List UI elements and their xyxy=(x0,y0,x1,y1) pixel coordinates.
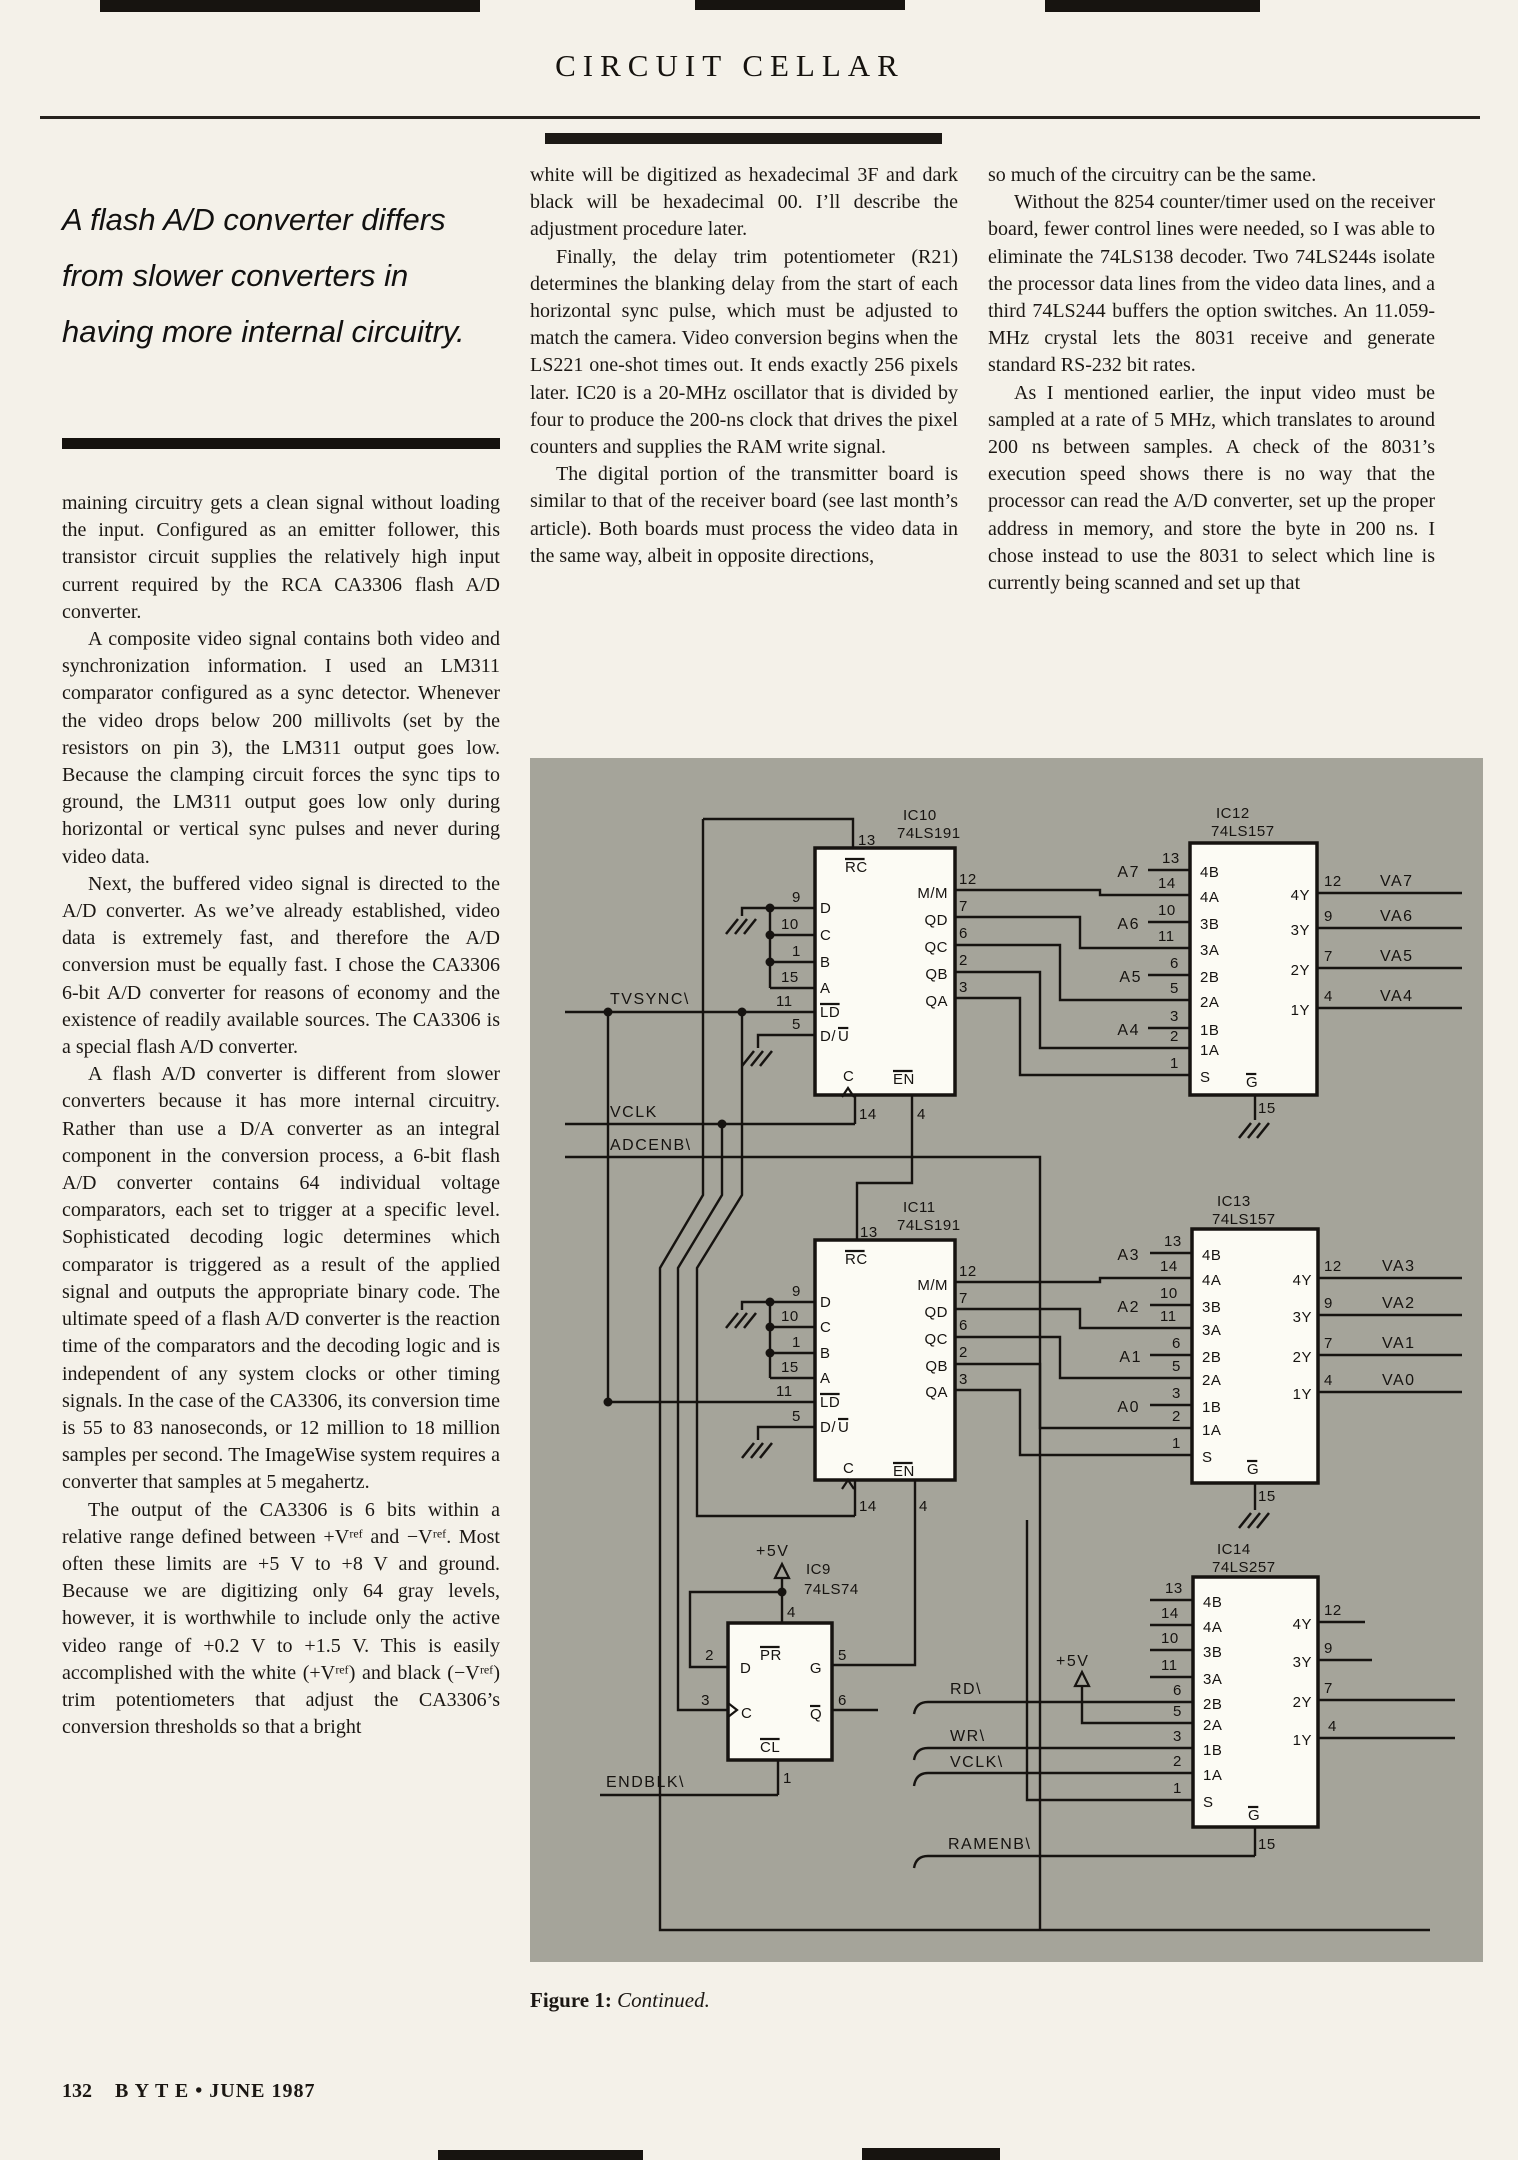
svg-text:12: 12 xyxy=(1324,1602,1342,1619)
svg-text:D/: D/ xyxy=(820,1419,836,1436)
svg-text:3B: 3B xyxy=(1200,916,1219,933)
svg-text:VA3: VA3 xyxy=(1382,1258,1416,1275)
svg-text:9: 9 xyxy=(1324,908,1333,925)
svg-text:LD: LD xyxy=(820,1004,840,1021)
svg-text:14: 14 xyxy=(1161,1605,1179,1622)
column-head-rule xyxy=(545,133,942,144)
svg-text:10: 10 xyxy=(781,916,799,933)
svg-text:15: 15 xyxy=(781,969,799,986)
svg-text:14: 14 xyxy=(1158,875,1176,892)
paragraph: white will be digitized as hexadecimal 3… xyxy=(530,162,958,244)
paragraph: Next, the buffered video signal is direc… xyxy=(62,871,500,1061)
svg-text:1: 1 xyxy=(1170,1055,1179,1072)
svg-text:4Y: 4Y xyxy=(1293,1272,1312,1289)
svg-text:7: 7 xyxy=(1324,1335,1333,1352)
svg-text:1B: 1B xyxy=(1202,1399,1221,1416)
svg-text:3Y: 3Y xyxy=(1293,1654,1312,1671)
pull-quote-rule xyxy=(62,438,500,449)
svg-text:4B: 4B xyxy=(1203,1594,1222,1611)
svg-text:C: C xyxy=(820,927,831,944)
svg-text:IC13: IC13 xyxy=(1217,1193,1251,1210)
svg-text:1B: 1B xyxy=(1200,1022,1219,1039)
svg-text:3: 3 xyxy=(1170,1008,1179,1025)
svg-text:5: 5 xyxy=(838,1647,847,1664)
scan-artifact xyxy=(438,2150,643,2160)
svg-text:11: 11 xyxy=(776,993,793,1010)
svg-text:C: C xyxy=(843,1068,854,1085)
svg-text:2A: 2A xyxy=(1200,994,1219,1011)
svg-text:3: 3 xyxy=(1173,1728,1182,1745)
svg-text:11: 11 xyxy=(776,1383,793,1400)
svg-text:13: 13 xyxy=(858,832,876,849)
svg-text:11: 11 xyxy=(1160,1308,1177,1325)
svg-text:12: 12 xyxy=(1324,1258,1342,1275)
svg-text:G: G xyxy=(1247,1461,1259,1478)
svg-text:G: G xyxy=(810,1660,822,1677)
svg-text:A7: A7 xyxy=(1117,864,1140,881)
svg-text:WR\: WR\ xyxy=(950,1728,986,1745)
svg-text:4: 4 xyxy=(1324,1372,1333,1389)
paragraph: A flash A/D converter is different from … xyxy=(62,1061,500,1496)
svg-text:QC: QC xyxy=(925,939,949,956)
svg-text:A: A xyxy=(820,980,831,997)
svg-text:1: 1 xyxy=(792,1334,801,1351)
svg-text:VCLK: VCLK xyxy=(610,1104,658,1121)
svg-text:13: 13 xyxy=(1164,1233,1182,1250)
scan-artifact xyxy=(862,2148,1000,2160)
svg-text:+5V: +5V xyxy=(756,1543,789,1560)
svg-text:B: B xyxy=(820,954,831,971)
page-number: 132 xyxy=(62,2080,92,2102)
svg-text:12: 12 xyxy=(1324,873,1342,890)
svg-text:12: 12 xyxy=(959,871,977,888)
svg-text:10: 10 xyxy=(1161,1630,1179,1647)
svg-text:D: D xyxy=(740,1660,751,1677)
svg-text:10: 10 xyxy=(781,1308,799,1325)
svg-text:QD: QD xyxy=(925,912,949,929)
svg-text:1Y: 1Y xyxy=(1293,1386,1312,1403)
svg-text:D: D xyxy=(820,900,831,917)
magazine-name: B Y T E • JUNE 1987 xyxy=(115,2080,315,2102)
svg-text:1: 1 xyxy=(1173,1780,1182,1797)
svg-text:2Y: 2Y xyxy=(1291,962,1310,979)
svg-text:5: 5 xyxy=(792,1016,801,1033)
svg-text:M/M: M/M xyxy=(917,885,948,902)
svg-text:IC10: IC10 xyxy=(903,807,937,824)
svg-text:14: 14 xyxy=(859,1106,877,1123)
svg-text:5: 5 xyxy=(1172,1358,1181,1375)
svg-text:1A: 1A xyxy=(1202,1422,1221,1439)
svg-text:14: 14 xyxy=(1160,1258,1178,1275)
paragraph: A composite video signal contains both v… xyxy=(62,626,500,871)
svg-text:74LS191: 74LS191 xyxy=(897,1217,961,1234)
svg-text:11: 11 xyxy=(1161,1657,1178,1674)
svg-text:VA5: VA5 xyxy=(1380,948,1414,965)
page-footer: 132 B Y T E • JUNE 1987 xyxy=(62,2080,315,2103)
svg-text:3: 3 xyxy=(1172,1385,1181,1402)
column-middle: white will be digitized as hexadecimal 3… xyxy=(530,162,958,570)
svg-text:VCLK\: VCLK\ xyxy=(950,1754,1004,1771)
column-right: so much of the circuitry can be the same… xyxy=(988,162,1435,597)
svg-text:2: 2 xyxy=(959,1344,968,1361)
svg-text:14: 14 xyxy=(859,1498,877,1515)
svg-text:2A: 2A xyxy=(1203,1717,1222,1734)
paragraph: The digital portion of the transmitter b… xyxy=(530,461,958,570)
scan-artifact xyxy=(695,0,905,10)
svg-text:4Y: 4Y xyxy=(1291,887,1310,904)
svg-text:2: 2 xyxy=(959,952,968,969)
svg-text:1B: 1B xyxy=(1203,1742,1222,1759)
svg-text:D/: D/ xyxy=(820,1028,836,1045)
svg-text:3Y: 3Y xyxy=(1293,1309,1312,1326)
svg-text:4A: 4A xyxy=(1203,1619,1222,1636)
svg-text:6: 6 xyxy=(838,1692,847,1709)
svg-text:4: 4 xyxy=(1328,1718,1337,1735)
svg-text:4A: 4A xyxy=(1202,1272,1221,1289)
svg-text:1Y: 1Y xyxy=(1291,1002,1310,1019)
paragraph: maining circuitry gets a clean signal wi… xyxy=(62,490,500,626)
svg-text:+5V: +5V xyxy=(1056,1653,1089,1670)
svg-text:PR: PR xyxy=(760,1647,782,1664)
svg-text:4: 4 xyxy=(1324,988,1333,1005)
svg-text:QC: QC xyxy=(925,1331,949,1348)
svg-text:2A: 2A xyxy=(1202,1372,1221,1389)
svg-text:A3: A3 xyxy=(1117,1247,1140,1264)
svg-text:3A: 3A xyxy=(1203,1671,1222,1688)
svg-text:6: 6 xyxy=(959,925,968,942)
svg-text:9: 9 xyxy=(792,1283,801,1300)
svg-text:2B: 2B xyxy=(1200,969,1219,986)
svg-text:VA0: VA0 xyxy=(1382,1372,1416,1389)
svg-text:1A: 1A xyxy=(1200,1042,1219,1059)
svg-text:4B: 4B xyxy=(1200,864,1219,881)
svg-text:6: 6 xyxy=(959,1317,968,1334)
svg-text:RD\: RD\ xyxy=(950,1681,982,1698)
svg-text:4: 4 xyxy=(917,1106,926,1123)
svg-text:3: 3 xyxy=(959,1371,968,1388)
svg-text:2Y: 2Y xyxy=(1293,1349,1312,1366)
svg-text:4: 4 xyxy=(919,1498,928,1515)
svg-text:ADCENB\: ADCENB\ xyxy=(610,1137,692,1154)
svg-text:ENDBLK\: ENDBLK\ xyxy=(606,1774,685,1791)
svg-text:3Y: 3Y xyxy=(1291,922,1310,939)
svg-text:3B: 3B xyxy=(1203,1644,1222,1661)
svg-text:IC12: IC12 xyxy=(1216,805,1250,822)
svg-text:1A: 1A xyxy=(1203,1767,1222,1784)
svg-text:12: 12 xyxy=(959,1263,977,1280)
svg-text:QB: QB xyxy=(925,966,948,983)
svg-text:A2: A2 xyxy=(1117,1299,1140,1316)
svg-text:4Y: 4Y xyxy=(1293,1616,1312,1633)
svg-text:6: 6 xyxy=(1173,1682,1182,1699)
svg-text:15: 15 xyxy=(1258,1488,1276,1505)
svg-text:RC: RC xyxy=(845,1251,868,1268)
page-title: CIRCUIT CELLAR xyxy=(0,48,1460,84)
svg-text:EN: EN xyxy=(893,1463,915,1480)
svg-text:4A: 4A xyxy=(1200,889,1219,906)
paragraph: The output of the CA3306 is 6 bits withi… xyxy=(62,1497,500,1742)
svg-text:Q: Q xyxy=(810,1706,822,1723)
svg-text:A0: A0 xyxy=(1117,1399,1140,1416)
header-rule xyxy=(40,116,1480,119)
svg-text:CL: CL xyxy=(760,1739,780,1756)
scan-artifact xyxy=(100,0,480,12)
svg-text:5: 5 xyxy=(1170,980,1179,997)
svg-text:A5: A5 xyxy=(1119,969,1142,986)
svg-text:1: 1 xyxy=(783,1770,792,1787)
figure-caption: Figure 1: Continued. xyxy=(530,1988,1230,2013)
svg-text:2: 2 xyxy=(1173,1753,1182,1770)
svg-text:VA4: VA4 xyxy=(1380,988,1414,1005)
figure-box: IC1074LS191IC1174LS191IC1274LS157IC1374L… xyxy=(530,758,1483,1962)
svg-text:7: 7 xyxy=(959,898,968,915)
svg-text:TVSYNC\: TVSYNC\ xyxy=(610,991,690,1008)
svg-text:LD: LD xyxy=(820,1394,840,1411)
figure-caption-text: Continued. xyxy=(617,1988,710,2012)
svg-text:3: 3 xyxy=(959,979,968,996)
column-left: maining circuitry gets a clean signal wi… xyxy=(62,490,500,1741)
svg-text:U: U xyxy=(838,1028,849,1045)
svg-text:IC9: IC9 xyxy=(806,1561,831,1578)
scan-artifact xyxy=(1045,0,1260,12)
svg-text:C: C xyxy=(741,1705,752,1722)
svg-text:IC14: IC14 xyxy=(1217,1541,1251,1558)
svg-text:A1: A1 xyxy=(1119,1349,1142,1366)
svg-text:7: 7 xyxy=(959,1290,968,1307)
svg-text:74LS157: 74LS157 xyxy=(1212,1211,1276,1228)
paragraph: Finally, the delay trim potentiometer (R… xyxy=(530,244,958,462)
figure-caption-label: Figure 1: xyxy=(530,1988,612,2012)
svg-text:4: 4 xyxy=(787,1604,796,1621)
svg-text:13: 13 xyxy=(860,1224,878,1241)
magazine-page: CIRCUIT CELLAR A flash A/D converter dif… xyxy=(0,0,1518,2160)
svg-text:S: S xyxy=(1200,1069,1211,1086)
svg-text:4B: 4B xyxy=(1202,1247,1221,1264)
svg-text:G: G xyxy=(1248,1807,1260,1824)
svg-text:2B: 2B xyxy=(1202,1349,1221,1366)
svg-text:74LS191: 74LS191 xyxy=(897,825,961,842)
svg-text:3: 3 xyxy=(701,1692,710,1709)
svg-text:A4: A4 xyxy=(1117,1022,1140,1039)
svg-text:3A: 3A xyxy=(1202,1322,1221,1339)
paragraph: As I mentioned earlier, the input video … xyxy=(988,380,1435,598)
svg-text:7: 7 xyxy=(1324,948,1333,965)
svg-text:VA6: VA6 xyxy=(1380,908,1414,925)
svg-text:RC: RC xyxy=(845,859,868,876)
svg-text:9: 9 xyxy=(1324,1295,1333,1312)
svg-text:QB: QB xyxy=(925,1358,948,1375)
svg-text:IC11: IC11 xyxy=(903,1199,936,1216)
svg-text:9: 9 xyxy=(1324,1640,1333,1657)
svg-text:EN: EN xyxy=(893,1071,915,1088)
svg-text:D: D xyxy=(820,1294,831,1311)
svg-text:U: U xyxy=(838,1419,849,1436)
svg-text:QD: QD xyxy=(925,1304,949,1321)
svg-text:2: 2 xyxy=(705,1647,714,1664)
svg-text:10: 10 xyxy=(1158,902,1176,919)
svg-text:A6: A6 xyxy=(1117,916,1140,933)
svg-text:QA: QA xyxy=(925,1384,948,1401)
svg-text:RAMENB\: RAMENB\ xyxy=(948,1836,1031,1853)
svg-text:15: 15 xyxy=(1258,1836,1276,1853)
svg-text:1Y: 1Y xyxy=(1293,1732,1312,1749)
svg-text:6: 6 xyxy=(1170,955,1179,972)
svg-text:6: 6 xyxy=(1172,1335,1181,1352)
svg-text:S: S xyxy=(1203,1794,1214,1811)
svg-text:2: 2 xyxy=(1172,1408,1181,1425)
svg-text:VA2: VA2 xyxy=(1382,1295,1416,1312)
svg-text:B: B xyxy=(820,1345,831,1362)
svg-text:C: C xyxy=(820,1319,831,1336)
svg-text:11: 11 xyxy=(1158,928,1175,945)
svg-text:3A: 3A xyxy=(1200,942,1219,959)
svg-text:74LS74: 74LS74 xyxy=(804,1581,859,1598)
svg-text:C: C xyxy=(843,1460,854,1477)
svg-text:A: A xyxy=(820,1370,831,1387)
paragraph: so much of the circuitry can be the same… xyxy=(988,162,1435,189)
svg-text:2B: 2B xyxy=(1203,1696,1222,1713)
svg-text:VA1: VA1 xyxy=(1382,1335,1416,1352)
svg-text:1: 1 xyxy=(1172,1435,1181,1452)
svg-text:3B: 3B xyxy=(1202,1299,1221,1316)
svg-text:2: 2 xyxy=(1170,1028,1179,1045)
svg-text:5: 5 xyxy=(792,1408,801,1425)
svg-text:2Y: 2Y xyxy=(1293,1694,1312,1711)
svg-text:G: G xyxy=(1246,1074,1258,1091)
pull-quote: A flash A/D converter differs from slowe… xyxy=(62,192,500,360)
svg-text:7: 7 xyxy=(1324,1680,1333,1697)
paragraph: Without the 8254 counter/timer used on t… xyxy=(988,189,1435,379)
svg-text:74LS257: 74LS257 xyxy=(1212,1559,1276,1576)
svg-text:15: 15 xyxy=(781,1359,799,1376)
svg-text:9: 9 xyxy=(792,889,801,906)
svg-text:1: 1 xyxy=(792,943,801,960)
svg-text:VA7: VA7 xyxy=(1380,873,1414,890)
svg-text:S: S xyxy=(1202,1449,1213,1466)
svg-text:M/M: M/M xyxy=(917,1277,948,1294)
svg-text:15: 15 xyxy=(1258,1100,1276,1117)
svg-text:74LS157: 74LS157 xyxy=(1211,823,1275,840)
svg-text:QA: QA xyxy=(925,993,948,1010)
svg-text:10: 10 xyxy=(1160,1285,1178,1302)
svg-text:13: 13 xyxy=(1162,850,1180,867)
svg-text:5: 5 xyxy=(1173,1703,1182,1720)
svg-text:13: 13 xyxy=(1165,1580,1183,1597)
